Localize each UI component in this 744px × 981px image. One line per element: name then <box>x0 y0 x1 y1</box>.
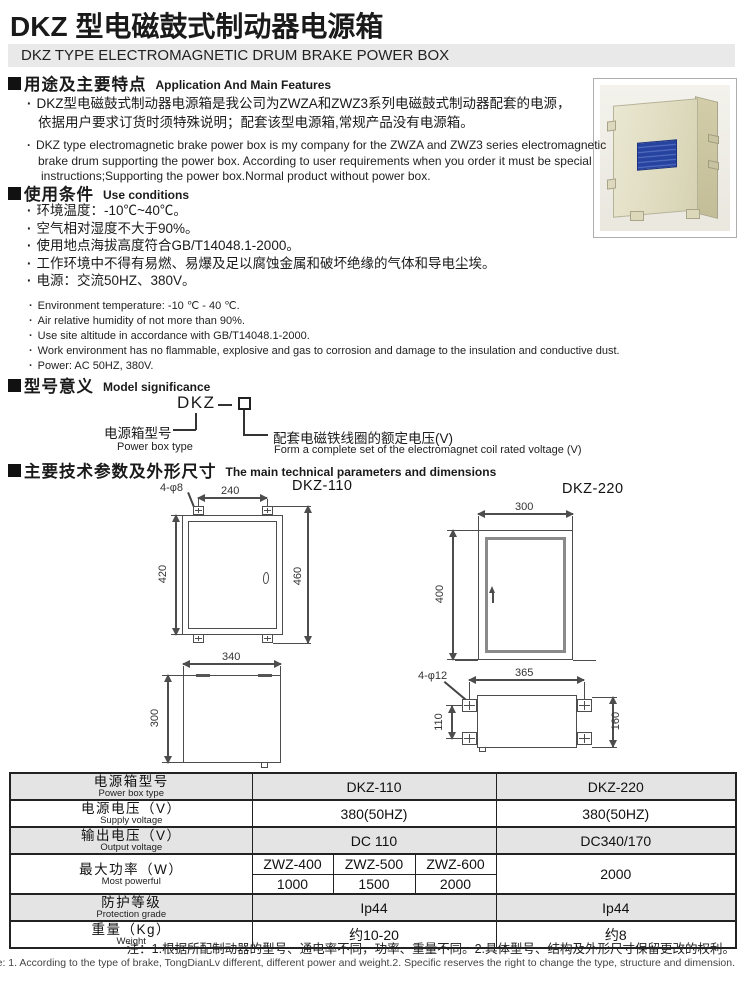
power-box-nameplate <box>637 139 677 170</box>
mounting-tab <box>462 699 477 712</box>
condition-en-item: Air relative humidity of not more than 9… <box>38 314 245 329</box>
dkz110-bottom-outline <box>183 675 281 763</box>
dim-line-365 <box>469 679 584 681</box>
cell-subheader: ZWZ-500 <box>333 854 415 874</box>
row-header-en: Most powerful <box>11 877 252 887</box>
section-features-heading: 用途及主要特点 Application And Main Features <box>8 71 331 95</box>
model-left-label-en: Power box type <box>117 441 193 453</box>
bullet-icon: · <box>27 202 32 220</box>
model-heading-en: Model significance <box>103 380 210 394</box>
section-marker-icon <box>8 464 21 477</box>
mounting-tab <box>193 506 204 515</box>
flange-line <box>455 660 478 661</box>
dim-line-460 <box>307 506 309 643</box>
tab-mark <box>196 674 210 677</box>
dim-400: 400 <box>434 579 446 609</box>
conditions-cn-list: ·环境温度：-10℃~40℃。 ·空气相对湿度不大于90%。 ·使用地点海拔高度… <box>27 202 496 290</box>
row-header-cn: 电源箱型号 <box>11 774 252 789</box>
power-box-hinge <box>607 120 616 131</box>
product-photo <box>600 85 730 231</box>
tech-heading-en: The main technical parameters and dimens… <box>226 465 497 479</box>
bullet-icon: · <box>27 94 32 113</box>
dkz220-front-door <box>485 537 566 653</box>
dim-hole-dkz220: 4-φ12 <box>418 670 447 682</box>
row-header-cn: 电源电压（V） <box>11 801 252 816</box>
row-header-en: Protection grade <box>11 910 252 920</box>
dim-line-110 <box>451 706 453 739</box>
cell-subheader: ZWZ-400 <box>252 854 333 874</box>
dim-365: 365 <box>515 667 533 679</box>
features-cn-line: DKZ型电磁鼓式制动器电源箱是我公司为ZWZA和ZWZ3系列电磁鼓式制动器配套的… <box>37 94 571 113</box>
model-left-connector <box>195 413 197 430</box>
tech-heading-cn: 主要技术参数及外形尺寸 <box>24 458 217 482</box>
cable-gland <box>261 762 268 768</box>
dim-line-240 <box>198 497 267 499</box>
bullet-icon: · <box>29 299 33 314</box>
model-dash-line <box>218 404 232 406</box>
bullet-icon: · <box>27 272 32 290</box>
features-en-line: brake drum supporting the power box. Acc… <box>38 154 592 170</box>
cell-dkz220: DKZ-220 <box>496 773 736 800</box>
model-heading-cn: 型号意义 <box>24 373 94 397</box>
power-box-hinge <box>607 178 616 189</box>
catalog-page: DKZ 型电磁鼓式制动器电源箱 DKZ TYPE ELECTROMAGNETIC… <box>0 0 744 981</box>
power-box-foot <box>686 209 700 219</box>
figure-label-dkz220: DKZ-220 <box>562 481 624 497</box>
model-right-connector <box>243 434 268 436</box>
product-photo-frame <box>593 78 737 238</box>
bullet-icon: · <box>29 359 33 374</box>
conditions-heading-en: Use conditions <box>103 188 189 202</box>
mounting-tab <box>262 506 273 515</box>
mounting-tab <box>193 634 204 643</box>
cell-subvalue: 1000 <box>252 874 333 894</box>
section-tech-heading: 主要技术参数及外形尺寸 The main technical parameter… <box>8 458 496 482</box>
dim-240: 240 <box>221 485 239 497</box>
cell-subvalue: 1500 <box>333 874 415 894</box>
cell-dkz110: 380(50HZ) <box>252 800 496 827</box>
section-marker-icon <box>8 187 21 200</box>
row-header: 防护等级 Protection grade <box>10 894 252 921</box>
dim-300-dkz220: 300 <box>515 501 533 513</box>
features-en-line: DKZ type electromagnetic brake power box… <box>36 138 606 154</box>
page-title: DKZ 型电磁鼓式制动器电源箱 <box>10 5 383 45</box>
dim-hole-dkz110: 4-φ8 <box>160 482 183 494</box>
bullet-icon: · <box>29 314 33 329</box>
mounting-tab <box>577 699 592 712</box>
features-cn-line: 依据用户要求订货时须特殊说明；配套该型电源箱,常规产品没有电源箱。 <box>38 113 474 132</box>
mounting-tab <box>577 732 592 745</box>
dim-420: 420 <box>157 559 169 589</box>
note-cn: 注：1.根据所配制动器的型号、通电率不同，功率、重量不同。2.具体型号、结构及外… <box>0 942 735 957</box>
condition-en-item: Environment temperature: -10 ℃ - 40 ℃. <box>38 299 240 314</box>
condition-cn-item: 空气相对湿度不大于90%。 <box>37 220 199 238</box>
features-en-paragraph: ·DKZ type electromagnetic brake power bo… <box>27 138 606 185</box>
page-subtitle-bar: DKZ TYPE ELECTROMAGNETIC DRUM BRAKE POWE… <box>8 44 735 67</box>
bullet-icon: · <box>29 344 33 359</box>
row-header-en: Power box type <box>11 789 252 799</box>
page-subtitle: DKZ TYPE ELECTROMAGNETIC DRUM BRAKE POWE… <box>8 44 735 67</box>
figure-label-dkz110: DKZ-110 <box>292 478 352 494</box>
model-left-connector <box>173 429 196 431</box>
cell-dkz220: 2000 <box>496 854 736 894</box>
dim-line-300-dkz110 <box>167 675 169 763</box>
condition-cn-item: 电源：交流50HZ、380V。 <box>37 272 196 290</box>
features-heading-en: Application And Main Features <box>156 78 332 92</box>
flange-line <box>573 660 596 661</box>
model-right-connector <box>243 410 245 436</box>
dim-160: 160 <box>610 706 622 736</box>
condition-cn-item: 环境温度：-10℃~40℃。 <box>37 202 187 220</box>
tab-mark <box>258 674 272 677</box>
dim-300-dkz110: 300 <box>149 703 161 733</box>
cell-dkz110: DKZ-110 <box>252 773 496 800</box>
row-header-cn: 重量（Kg） <box>11 922 252 937</box>
model-voltage-box <box>238 397 251 410</box>
section-marker-icon <box>8 77 21 90</box>
extension-line <box>183 666 184 675</box>
bullet-icon: · <box>27 220 32 238</box>
bullet-icon: · <box>27 138 31 154</box>
row-header: 电源电压（V） Supply voltage <box>10 800 252 827</box>
model-left-label-cn: 电源箱型号 <box>104 422 172 442</box>
table-row: 防护等级 Protection grade Ip44 Ip44 <box>10 894 736 921</box>
condition-cn-item: 使用地点海拔高度符合GB/T14048.1-2000。 <box>37 237 300 255</box>
bullet-icon: · <box>29 329 33 344</box>
cell-dkz110: Ip44 <box>252 894 496 921</box>
features-cn-paragraph: ·DKZ型电磁鼓式制动器电源箱是我公司为ZWZA和ZWZ3系列电磁鼓式制动器配套… <box>27 94 570 132</box>
table-row: 电源箱型号 Power box type DKZ-110 DKZ-220 <box>10 773 736 800</box>
row-header-cn: 输出电压（V） <box>11 828 252 843</box>
dim-line-340 <box>183 663 281 665</box>
mounting-tab <box>262 634 273 643</box>
extension-line <box>478 516 479 530</box>
bullet-icon: · <box>27 255 32 273</box>
bullet-icon: · <box>27 237 32 255</box>
extension-line <box>469 682 470 699</box>
condition-cn-item: 工作环境中不得有易燃、易爆及足以腐蚀金属和破坏绝缘的气体和导电尘埃。 <box>37 255 496 273</box>
dim-line-300-dkz220 <box>478 513 573 515</box>
row-header-cn: 最大功率（W） <box>11 862 252 877</box>
dkz220-bottom-outline <box>477 695 577 748</box>
condition-en-item: Use site altitude in accordance with GB/… <box>38 329 310 344</box>
row-header: 最大功率（W） Most powerful <box>10 854 252 894</box>
condition-en-item: Power: AC 50HZ, 380V. <box>38 359 154 374</box>
cell-dkz220: 380(50HZ) <box>496 800 736 827</box>
table-notes: 注：1.根据所配制动器的型号、通电率不同，功率、重量不同。2.具体型号、结构及外… <box>0 942 735 970</box>
extension-line <box>584 682 585 699</box>
model-code: DKZ <box>177 393 216 413</box>
dim-line-420 <box>175 515 177 635</box>
spec-table: 电源箱型号 Power box type DKZ-110 DKZ-220 电源电… <box>9 772 737 949</box>
cell-subvalue: 2000 <box>415 874 496 894</box>
model-right-label-en: Form a complete set of the electromagnet… <box>274 444 582 456</box>
table-row: 电源电压（V） Supply voltage 380(50HZ) 380(50H… <box>10 800 736 827</box>
extension-line <box>572 516 573 530</box>
cell-dkz110: DC 110 <box>252 827 496 854</box>
condition-en-item: Work environment has no flammable, explo… <box>38 344 620 359</box>
dim-110: 110 <box>433 707 445 737</box>
cell-subheader: ZWZ-600 <box>415 854 496 874</box>
row-header: 电源箱型号 Power box type <box>10 773 252 800</box>
table-row: 最大功率（W） Most powerful ZWZ-400 ZWZ-500 ZW… <box>10 854 736 874</box>
cell-dkz220: Ip44 <box>496 894 736 921</box>
mounting-tab <box>462 732 477 745</box>
table-row: 输出电压（V） Output voltage DC 110 DC340/170 <box>10 827 736 854</box>
door-handle <box>492 592 494 603</box>
dim-340: 340 <box>222 651 240 663</box>
features-heading-cn: 用途及主要特点 <box>24 71 147 95</box>
row-header-en: Output voltage <box>11 843 252 853</box>
conditions-en-list: ·Environment temperature: -10 ℃ - 40 ℃. … <box>29 299 620 374</box>
row-header-en: Supply voltage <box>11 816 252 826</box>
extension-line <box>280 666 281 675</box>
row-header-cn: 防护等级 <box>11 895 252 910</box>
power-box-foot <box>630 211 644 221</box>
cable-gland <box>479 747 486 752</box>
note-en: Note: 1. According to the type of brake,… <box>0 957 735 970</box>
section-marker-icon <box>8 379 21 392</box>
dim-460: 460 <box>292 561 304 591</box>
power-box-side-face <box>695 96 718 219</box>
cell-dkz220: DC340/170 <box>496 827 736 854</box>
row-header: 输出电压（V） Output voltage <box>10 827 252 854</box>
dim-line-400 <box>452 530 454 660</box>
